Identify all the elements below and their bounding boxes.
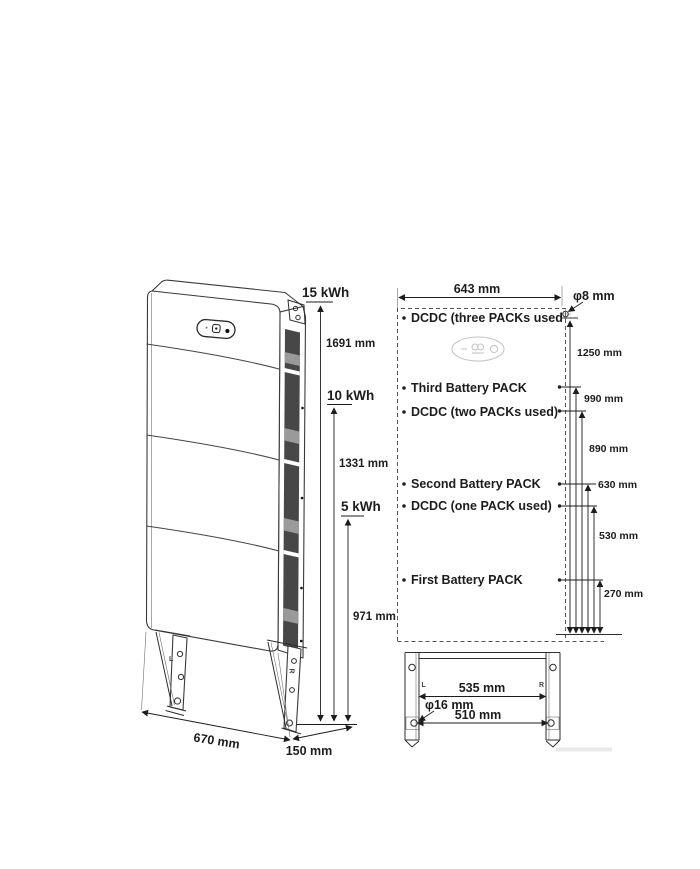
- bracket-gusset: [156, 632, 172, 706]
- leader-line: [569, 302, 584, 312]
- height-label-630: 630 mm: [598, 479, 637, 491]
- dim-stand-535: 535 mm: [420, 681, 546, 697]
- component-label-dcdc-two: DCDC (two PACKs used): [411, 405, 558, 419]
- side-screw-dot-4: [300, 640, 303, 643]
- leg-bolt-pad: [547, 717, 560, 730]
- extension-line-left: [142, 632, 147, 710]
- dim-width-643: 643 mm: [398, 282, 563, 308]
- dim-width-670: 670 mm: [142, 712, 290, 752]
- floor-stand-front: L R 535 mm φ16 mm 510 mm: [405, 653, 560, 748]
- leader-line: [419, 711, 434, 721]
- dim-height-1331: 10 kWh 1331 mm: [327, 388, 388, 721]
- width-label-643: 643 mm: [454, 282, 501, 296]
- height-label-270: 270 mm: [604, 588, 643, 600]
- front-face-outline: [398, 309, 566, 642]
- stand-width-label-535: 535 mm: [459, 681, 506, 695]
- bullet-icon: [402, 482, 406, 486]
- stand-top-bar: [405, 653, 560, 659]
- height-dimension-lines: 1250 mm 990 mm 890 mm 630 mm 530 mm 270 …: [556, 318, 643, 635]
- bullet-icon: [402, 386, 406, 390]
- side-screw-dot-1: [301, 407, 304, 410]
- stand-left-leg: L: [405, 653, 427, 748]
- stand-left-mark: L: [422, 682, 427, 689]
- width-label-670: 670 mm: [193, 730, 241, 751]
- leg-foot: [405, 740, 419, 747]
- height-label-1250: 1250 mm: [577, 347, 622, 359]
- hole-label-phi8: φ8 mm: [573, 289, 615, 303]
- height-label-971: 971 mm: [353, 611, 396, 623]
- capacity-label-10kwh: 10 kWh: [327, 388, 374, 403]
- component-label-dcdc-one: DCDC (one PACK used): [411, 499, 552, 513]
- stand-right-leg: R: [539, 653, 560, 748]
- height-label-890: 890 mm: [589, 443, 628, 455]
- side-screw-dot-3: [300, 587, 303, 590]
- bullet-icon: [402, 504, 406, 508]
- status-panel-badge: [452, 337, 504, 361]
- bullet-icon: [402, 578, 406, 582]
- height-label-530: 530 mm: [599, 530, 638, 542]
- capacity-label-15kwh: 15 kWh: [302, 285, 349, 300]
- bracket-left-mark: L: [169, 656, 174, 663]
- height-label-990: 990 mm: [584, 393, 623, 405]
- capacity-label-5kwh: 5 kWh: [341, 499, 381, 514]
- depth-label-150: 150 mm: [286, 744, 333, 758]
- tower-front-face: [147, 291, 281, 651]
- bracket-gusset: [268, 642, 286, 728]
- battery-dimension-diagram: L R 15 kWh 1691 mm: [0, 0, 700, 869]
- leg-bolt-upper: [550, 664, 556, 670]
- status-panel: [196, 319, 235, 339]
- badge-power-icon: [490, 345, 497, 352]
- vent-dark-band: [283, 329, 300, 650]
- leg-outline: [546, 653, 560, 741]
- height-label-1691: 1691 mm: [326, 338, 375, 350]
- component-list: DCDC (three PACKs used Third Battery PAC…: [402, 311, 563, 587]
- dimension-anchors: [558, 385, 603, 581]
- component-label-dcdc-three: DCDC (three PACKs used: [411, 311, 563, 325]
- leg-bolt-upper: [409, 664, 415, 670]
- side-screw-dot-2: [301, 497, 304, 500]
- floor-stand-right-bracket: R: [267, 640, 307, 734]
- perspective-view: L R 15 kWh 1691 mm: [142, 280, 396, 758]
- stand-right-mark: R: [539, 682, 544, 689]
- component-label-first-pack: First Battery PACK: [411, 573, 523, 587]
- bracket-right-mark: R: [288, 669, 295, 674]
- bracket-plate: [170, 635, 187, 710]
- leg-foot: [546, 740, 560, 747]
- front-view: 643 mm φ8 mm DCDC (three PACKs used Thir…: [398, 282, 644, 750]
- stand-width-label-510: 510 mm: [455, 708, 502, 722]
- component-label-second-pack: Second Battery PACK: [411, 477, 541, 491]
- bullet-icon: [402, 410, 406, 414]
- floor-stand-left-bracket: L: [155, 630, 190, 716]
- height-label-1331: 1331 mm: [339, 458, 388, 470]
- wall-hole-phi8: φ8 mm: [560, 289, 615, 320]
- component-label-third-pack: Third Battery PACK: [411, 381, 527, 395]
- dim-line: [293, 727, 352, 739]
- leg-bolt-pad: [406, 717, 419, 730]
- leg-outline: [405, 653, 419, 741]
- battery-tower-illustration: L R: [142, 280, 308, 737]
- bullet-icon: [402, 316, 406, 320]
- dim-height-971: 5 kWh 971 mm: [341, 499, 396, 721]
